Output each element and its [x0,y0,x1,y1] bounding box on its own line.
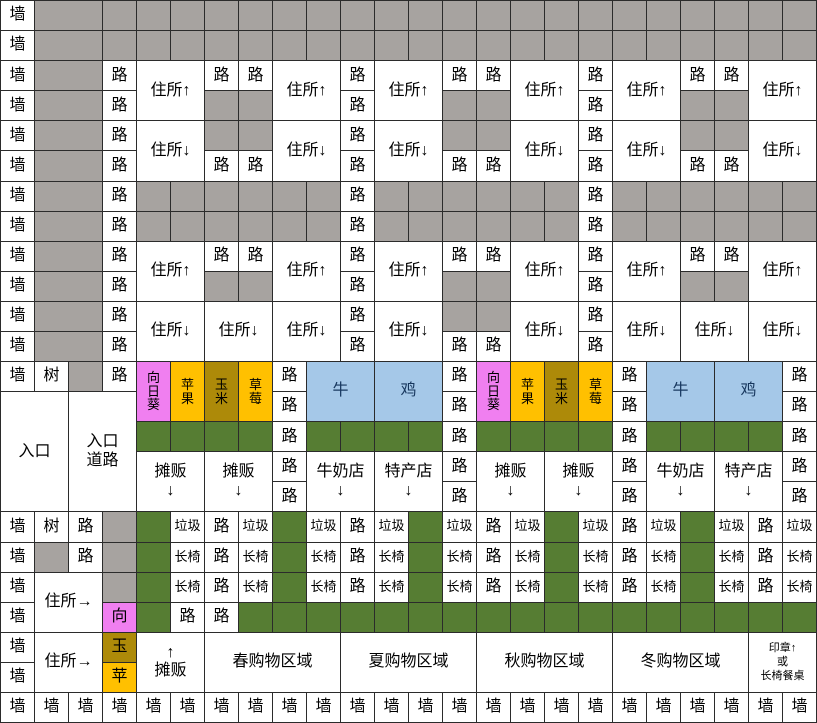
empty-gray-cell[interactable] [103,543,136,572]
wall-cell[interactable]: 墙 [783,693,816,722]
hedge-green-cell[interactable] [409,543,442,572]
road-cell[interactable]: 路 [783,422,816,451]
empty-gray-cell[interactable] [511,31,544,60]
road-cell[interactable]: 路 [783,362,816,391]
wall-cell[interactable]: 墙 [1,512,34,541]
hedge-green-cell[interactable] [239,603,272,632]
empty-gray-cell[interactable] [409,182,442,211]
empty-gray-cell[interactable] [137,1,170,30]
furniture-cell[interactable]: 垃圾 [239,512,272,541]
empty-gray-cell[interactable] [239,121,272,150]
animal-pen-cell[interactable]: 鸡 [375,362,442,421]
label-cell[interactable]: 秋购物区域 [477,633,612,692]
road-cell[interactable]: 路 [103,362,136,391]
empty-gray-cell[interactable] [681,31,714,60]
empty-gray-cell[interactable] [35,182,102,211]
furniture-cell[interactable]: 长椅 [307,573,340,602]
hedge-green-cell[interactable] [341,422,374,451]
empty-gray-cell[interactable] [35,272,102,301]
hedge-green-cell[interactable] [137,422,170,451]
crop-gold-cell[interactable]: 草 莓 [579,362,612,421]
empty-gray-cell[interactable] [477,91,510,120]
empty-gray-cell[interactable] [681,1,714,30]
empty-gray-cell[interactable] [647,212,680,241]
empty-gray-cell[interactable] [477,121,510,150]
empty-gray-cell[interactable] [375,182,408,211]
empty-gray-cell[interactable] [715,31,748,60]
empty-gray-cell[interactable] [477,1,510,30]
wall-cell[interactable]: 墙 [1,603,34,632]
road-cell[interactable]: 路 [477,242,510,271]
wall-cell[interactable]: 墙 [1,1,34,30]
label-cell[interactable]: 住所↑ [273,61,340,120]
furniture-cell[interactable]: 长椅 [443,573,476,602]
furniture-cell[interactable]: 垃圾 [783,512,816,541]
empty-gray-cell[interactable] [681,121,714,150]
road-cell[interactable]: 路 [715,242,748,271]
label-cell[interactable]: 摊贩 ↓ [477,452,544,511]
hedge-green-cell[interactable] [273,512,306,541]
road-cell[interactable]: 路 [171,603,204,632]
furniture-cell[interactable]: 垃圾 [715,512,748,541]
wall-cell[interactable]: 墙 [1,121,34,150]
hedge-green-cell[interactable] [681,573,714,602]
furniture-cell[interactable]: 垃圾 [443,512,476,541]
furniture-cell[interactable]: 垃圾 [171,512,204,541]
empty-gray-cell[interactable] [715,182,748,211]
wall-cell[interactable]: 墙 [137,693,170,722]
wall-cell[interactable]: 墙 [35,693,68,722]
empty-gray-cell[interactable] [443,272,476,301]
hedge-green-cell[interactable] [749,603,782,632]
wall-cell[interactable]: 墙 [647,693,680,722]
empty-gray-cell[interactable] [239,212,272,241]
wall-cell[interactable]: 墙 [1,91,34,120]
road-cell[interactable]: 路 [681,61,714,90]
furniture-cell[interactable]: 垃圾 [647,512,680,541]
empty-gray-cell[interactable] [715,212,748,241]
road-cell[interactable]: 路 [783,452,816,481]
wall-cell[interactable]: 墙 [239,693,272,722]
hedge-green-cell[interactable] [409,603,442,632]
hedge-green-cell[interactable] [681,603,714,632]
empty-gray-cell[interactable] [137,212,170,241]
label-cell[interactable]: 印章↑ 或 长椅餐桌 [749,633,816,692]
furniture-cell[interactable]: 长椅 [783,573,816,602]
wall-cell[interactable]: 墙 [341,693,374,722]
empty-gray-cell[interactable] [103,573,136,602]
road-cell[interactable]: 路 [103,272,136,301]
empty-gray-cell[interactable] [205,212,238,241]
road-cell[interactable]: 路 [205,543,238,572]
hedge-green-cell[interactable] [545,422,578,451]
empty-gray-cell[interactable] [103,1,136,30]
crop-sunflower-cell[interactable]: 向 日 葵 [477,362,510,421]
furniture-cell[interactable]: 长椅 [239,573,272,602]
empty-gray-cell[interactable] [443,182,476,211]
road-cell[interactable]: 路 [341,121,374,150]
empty-gray-cell[interactable] [613,182,646,211]
furniture-cell[interactable]: 长椅 [443,543,476,572]
empty-gray-cell[interactable] [579,1,612,30]
wall-cell[interactable]: 墙 [511,693,544,722]
empty-gray-cell[interactable] [239,1,272,30]
label-cell[interactable]: 入口 道路 [69,392,136,511]
wall-cell[interactable]: 墙 [477,693,510,722]
road-cell[interactable]: 路 [205,603,238,632]
road-cell[interactable]: 路 [579,151,612,180]
road-cell[interactable]: 路 [613,392,646,421]
hedge-green-cell[interactable] [375,422,408,451]
empty-gray-cell[interactable] [443,121,476,150]
hedge-green-cell[interactable] [545,512,578,541]
empty-gray-cell[interactable] [715,272,748,301]
hedge-green-cell[interactable] [613,603,646,632]
road-cell[interactable]: 路 [613,512,646,541]
wall-cell[interactable]: 墙 [443,693,476,722]
road-cell[interactable]: 路 [341,573,374,602]
road-cell[interactable]: 路 [715,61,748,90]
empty-gray-cell[interactable] [681,212,714,241]
crop-gold-cell[interactable]: 苹 果 [171,362,204,421]
label-cell[interactable]: 住所↓ [375,121,442,180]
road-cell[interactable]: 路 [783,482,816,511]
road-cell[interactable]: 路 [103,91,136,120]
hedge-green-cell[interactable] [443,603,476,632]
empty-gray-cell[interactable] [273,1,306,30]
furniture-cell[interactable]: 长椅 [783,543,816,572]
wall-cell[interactable]: 墙 [1,332,34,361]
road-cell[interactable]: 路 [103,332,136,361]
road-cell[interactable]: 路 [579,61,612,90]
empty-gray-cell[interactable] [205,272,238,301]
wall-cell[interactable]: 墙 [1,302,34,331]
road-cell[interactable]: 路 [477,61,510,90]
label-cell[interactable]: 住所↓ [613,302,680,361]
furniture-cell[interactable]: 长椅 [715,573,748,602]
crop-gold-cell[interactable]: 苹 [103,663,136,692]
empty-gray-cell[interactable] [273,182,306,211]
crop-gold-cell[interactable]: 草 莓 [239,362,272,421]
road-cell[interactable]: 路 [103,182,136,211]
road-cell[interactable]: 路 [273,482,306,511]
empty-gray-cell[interactable] [103,512,136,541]
crop-sunflower-cell[interactable]: 向 日 葵 [137,362,170,421]
road-cell[interactable]: 路 [69,512,102,541]
empty-gray-cell[interactable] [477,212,510,241]
road-cell[interactable]: 路 [443,332,476,361]
empty-gray-cell[interactable] [375,212,408,241]
road-cell[interactable]: 路 [749,573,782,602]
wall-cell[interactable]: 墙 [1,151,34,180]
empty-gray-cell[interactable] [35,121,102,150]
hedge-green-cell[interactable] [545,543,578,572]
road-cell[interactable]: 路 [341,91,374,120]
empty-gray-cell[interactable] [715,121,748,150]
empty-gray-cell[interactable] [681,272,714,301]
wall-cell[interactable]: 墙 [613,693,646,722]
label-cell[interactable]: 牛奶店 ↓ [307,452,374,511]
label-cell[interactable]: 住所↓ [749,302,816,361]
wall-cell[interactable]: 墙 [171,693,204,722]
empty-gray-cell[interactable] [511,1,544,30]
road-cell[interactable]: 路 [205,242,238,271]
road-cell[interactable]: 路 [783,392,816,421]
empty-gray-cell[interactable] [715,1,748,30]
hedge-green-cell[interactable] [273,603,306,632]
hedge-green-cell[interactable] [647,603,680,632]
wall-cell[interactable]: 墙 [273,693,306,722]
empty-gray-cell[interactable] [749,182,782,211]
furniture-cell[interactable]: 垃圾 [307,512,340,541]
hedge-green-cell[interactable] [273,573,306,602]
road-cell[interactable]: 路 [443,482,476,511]
crop-dark-gold-cell[interactable]: 玉 [103,633,136,662]
road-cell[interactable]: 路 [273,362,306,391]
animal-pen-cell[interactable]: 牛 [307,362,374,421]
road-cell[interactable]: 路 [477,332,510,361]
hedge-green-cell[interactable] [239,422,272,451]
empty-gray-cell[interactable] [35,242,102,271]
empty-gray-cell[interactable] [307,31,340,60]
empty-gray-cell[interactable] [307,182,340,211]
empty-gray-cell[interactable] [35,151,102,180]
wall-cell[interactable]: 墙 [1,573,34,602]
wall-cell[interactable]: 墙 [749,693,782,722]
road-cell[interactable]: 路 [239,151,272,180]
road-cell[interactable]: 路 [205,512,238,541]
road-cell[interactable]: 路 [103,151,136,180]
label-cell[interactable]: 住所↓ [273,302,340,361]
hedge-green-cell[interactable] [409,573,442,602]
road-cell[interactable]: 路 [579,332,612,361]
road-cell[interactable]: 路 [103,121,136,150]
hedge-green-cell[interactable] [137,512,170,541]
road-cell[interactable]: 路 [341,543,374,572]
wall-cell[interactable]: 墙 [1,272,34,301]
empty-gray-cell[interactable] [171,31,204,60]
empty-gray-cell[interactable] [477,31,510,60]
wall-cell[interactable]: 墙 [103,693,136,722]
road-cell[interactable]: 路 [239,242,272,271]
empty-gray-cell[interactable] [35,61,102,90]
empty-gray-cell[interactable] [443,302,476,331]
empty-gray-cell[interactable] [477,302,510,331]
road-cell[interactable]: 路 [239,61,272,90]
wall-cell[interactable]: 墙 [1,693,34,722]
animal-pen-cell[interactable]: 牛 [647,362,714,421]
road-cell[interactable]: 路 [749,512,782,541]
road-cell[interactable]: 路 [205,151,238,180]
empty-gray-cell[interactable] [647,1,680,30]
label-cell[interactable]: 特产店 ↓ [375,452,442,511]
furniture-cell[interactable]: 长椅 [307,543,340,572]
road-cell[interactable]: 路 [69,543,102,572]
label-cell[interactable]: 入口 [1,392,68,511]
furniture-cell[interactable]: 长椅 [375,573,408,602]
empty-gray-cell[interactable] [545,212,578,241]
road-cell[interactable]: 路 [273,422,306,451]
empty-gray-cell[interactable] [35,543,68,572]
road-cell[interactable]: 路 [341,212,374,241]
hedge-green-cell[interactable] [681,422,714,451]
furniture-cell[interactable]: 垃圾 [375,512,408,541]
furniture-cell[interactable]: 长椅 [171,573,204,602]
empty-gray-cell[interactable] [715,91,748,120]
empty-gray-cell[interactable] [171,212,204,241]
empty-gray-cell[interactable] [171,182,204,211]
empty-gray-cell[interactable] [783,1,816,30]
wall-cell[interactable]: 墙 [1,633,34,662]
hedge-green-cell[interactable] [715,603,748,632]
empty-gray-cell[interactable] [579,31,612,60]
wall-cell[interactable]: 墙 [307,693,340,722]
label-cell[interactable]: 住所↓ [273,121,340,180]
road-cell[interactable]: 路 [341,302,374,331]
road-cell[interactable]: 路 [477,512,510,541]
wall-cell[interactable]: 墙 [69,693,102,722]
label-cell[interactable]: 住所↓ [137,302,204,361]
road-cell[interactable]: 路 [443,422,476,451]
empty-gray-cell[interactable] [613,31,646,60]
hedge-green-cell[interactable] [579,422,612,451]
hedge-green-cell[interactable] [273,543,306,572]
furniture-cell[interactable]: 长椅 [579,573,612,602]
empty-gray-cell[interactable] [545,1,578,30]
furniture-cell[interactable]: 长椅 [239,543,272,572]
empty-gray-cell[interactable] [409,1,442,30]
empty-gray-cell[interactable] [35,91,102,120]
road-cell[interactable]: 路 [443,362,476,391]
empty-gray-cell[interactable] [35,31,102,60]
hedge-green-cell[interactable] [341,603,374,632]
empty-gray-cell[interactable] [341,1,374,30]
empty-gray-cell[interactable] [409,212,442,241]
wall-cell[interactable]: 墙 [1,543,34,572]
animal-pen-cell[interactable]: 鸡 [715,362,782,421]
road-cell[interactable]: 路 [103,242,136,271]
label-cell[interactable]: 住所↑ [137,61,204,120]
wall-cell[interactable]: 墙 [375,693,408,722]
hedge-green-cell[interactable] [137,573,170,602]
hedge-green-cell[interactable] [783,603,816,632]
road-cell[interactable]: 路 [443,242,476,271]
furniture-cell[interactable]: 长椅 [511,573,544,602]
label-cell[interactable]: 春购物区域 [205,633,340,692]
hedge-green-cell[interactable] [681,512,714,541]
hedge-green-cell[interactable] [545,573,578,602]
label-cell[interactable]: 冬购物区域 [613,633,748,692]
road-cell[interactable]: 路 [341,61,374,90]
label-cell[interactable]: 住所→ [35,633,102,692]
empty-gray-cell[interactable] [443,31,476,60]
crop-dark-gold-cell[interactable]: 玉 米 [545,362,578,421]
hedge-green-cell[interactable] [477,422,510,451]
furniture-cell[interactable]: 垃圾 [511,512,544,541]
hedge-green-cell[interactable] [307,603,340,632]
empty-gray-cell[interactable] [341,31,374,60]
furniture-cell[interactable]: 长椅 [511,543,544,572]
empty-gray-cell[interactable] [443,91,476,120]
hedge-green-cell[interactable] [647,422,680,451]
road-cell[interactable]: 路 [579,91,612,120]
label-cell[interactable]: 住所↑ [375,61,442,120]
hedge-green-cell[interactable] [477,603,510,632]
hedge-green-cell[interactable] [681,543,714,572]
empty-gray-cell[interactable] [477,182,510,211]
empty-gray-cell[interactable] [239,272,272,301]
label-cell[interactable]: 住所↓ [205,302,272,361]
road-cell[interactable]: 路 [341,512,374,541]
empty-gray-cell[interactable] [205,31,238,60]
empty-gray-cell[interactable] [613,212,646,241]
empty-gray-cell[interactable] [681,91,714,120]
furniture-cell[interactable]: 长椅 [647,573,680,602]
road-cell[interactable]: 路 [613,452,646,481]
label-cell[interactable]: 夏购物区域 [341,633,476,692]
road-cell[interactable]: 路 [579,242,612,271]
road-cell[interactable]: 路 [579,121,612,150]
road-cell[interactable]: 路 [341,332,374,361]
empty-gray-cell[interactable] [239,182,272,211]
label-cell[interactable]: 摊贩 ↓ [137,452,204,511]
hedge-green-cell[interactable] [137,543,170,572]
empty-gray-cell[interactable] [307,212,340,241]
empty-gray-cell[interactable] [545,182,578,211]
road-cell[interactable]: 路 [613,422,646,451]
empty-gray-cell[interactable] [239,91,272,120]
wall-cell[interactable]: 墙 [545,693,578,722]
empty-gray-cell[interactable] [35,302,102,331]
road-cell[interactable]: 路 [613,573,646,602]
road-cell[interactable]: 路 [579,272,612,301]
label-cell[interactable]: 住所↓ [137,121,204,180]
furniture-cell[interactable]: 长椅 [375,543,408,572]
empty-gray-cell[interactable] [749,31,782,60]
wall-cell[interactable]: 墙 [1,212,34,241]
empty-gray-cell[interactable] [205,1,238,30]
furniture-cell[interactable]: 垃圾 [579,512,612,541]
road-cell[interactable]: 路 [613,362,646,391]
empty-gray-cell[interactable] [35,1,102,30]
empty-gray-cell[interactable] [375,1,408,30]
hedge-green-cell[interactable] [307,422,340,451]
empty-gray-cell[interactable] [647,182,680,211]
empty-gray-cell[interactable] [375,31,408,60]
hedge-green-cell[interactable] [545,603,578,632]
empty-gray-cell[interactable] [511,182,544,211]
furniture-cell[interactable]: 长椅 [579,543,612,572]
hedge-green-cell[interactable] [205,422,238,451]
road-cell[interactable]: 路 [715,151,748,180]
wall-cell[interactable]: 墙 [681,693,714,722]
hedge-green-cell[interactable] [749,422,782,451]
empty-gray-cell[interactable] [171,1,204,30]
road-cell[interactable]: 路 [341,272,374,301]
empty-gray-cell[interactable] [69,362,102,391]
wall-cell[interactable]: 墙 [205,693,238,722]
road-cell[interactable]: 路 [443,151,476,180]
label-cell[interactable]: 住所↓ [749,121,816,180]
empty-gray-cell[interactable] [137,31,170,60]
wall-cell[interactable]: 墙 [409,693,442,722]
wall-cell[interactable]: 墙 [1,242,34,271]
road-cell[interactable]: 路 [205,61,238,90]
empty-gray-cell[interactable] [137,182,170,211]
empty-gray-cell[interactable] [35,332,102,361]
furniture-cell[interactable]: 长椅 [715,543,748,572]
empty-gray-cell[interactable] [409,31,442,60]
